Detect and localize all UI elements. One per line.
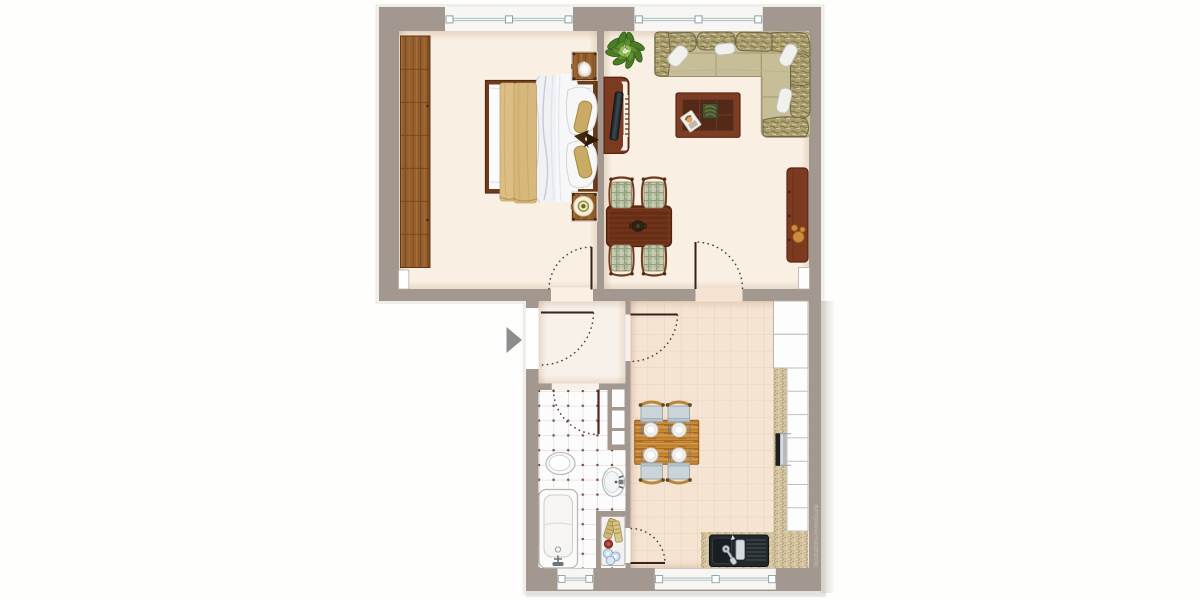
svg-text:Illustrations-immoGrafik: Illustrations-immoGrafik (814, 503, 820, 567)
